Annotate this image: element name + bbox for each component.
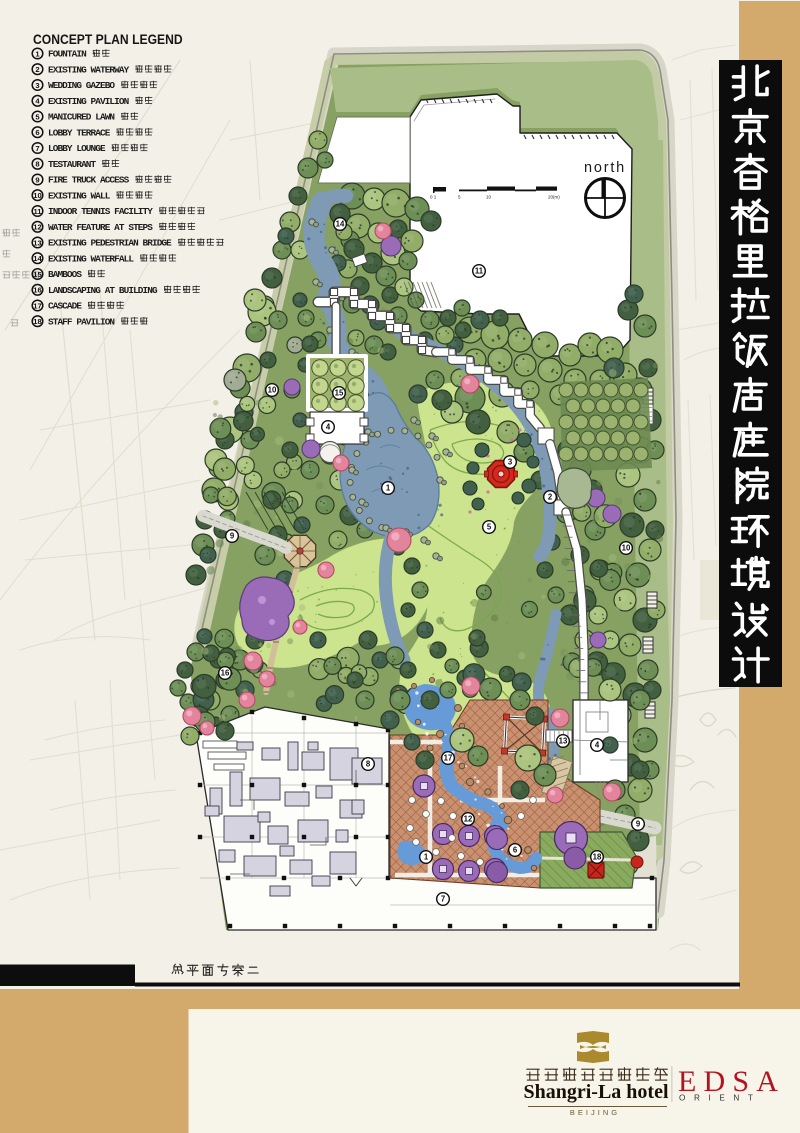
svg-text:FOUNTAIN: FOUNTAIN <box>48 49 87 60</box>
svg-text:9: 9 <box>636 820 641 829</box>
svg-text:5: 5 <box>487 523 492 532</box>
svg-text:20(m): 20(m) <box>548 195 560 200</box>
svg-text:WEDDING GAZEBO: WEDDING GAZEBO <box>48 80 115 91</box>
svg-text:1: 1 <box>386 484 391 493</box>
svg-text:17: 17 <box>33 301 41 310</box>
svg-text:EXISTING WALL: EXISTING WALL <box>48 190 111 201</box>
svg-text:2: 2 <box>548 493 553 502</box>
svg-text:LANDSCAPING AT BUILDING: LANDSCAPING AT BUILDING <box>48 285 158 296</box>
svg-text:BAMBOOS: BAMBOOS <box>48 269 82 280</box>
svg-text:10: 10 <box>268 386 277 395</box>
svg-text:EXISTING PEDESTRIAN BRIDGE: EXISTING PEDESTRIAN BRIDGE <box>48 238 172 249</box>
svg-text:ORIENT: ORIENT <box>679 1094 762 1103</box>
svg-text:3: 3 <box>35 81 39 90</box>
svg-text:17: 17 <box>444 754 453 763</box>
svg-text:15: 15 <box>33 270 42 279</box>
svg-text:north: north <box>584 160 626 176</box>
svg-text:EXISTING WATERFALL: EXISTING WATERFALL <box>48 253 134 264</box>
svg-text:0 1: 0 1 <box>430 195 437 200</box>
svg-text:EXISTING PAVILION: EXISTING PAVILION <box>48 96 130 107</box>
svg-text:4: 4 <box>595 741 600 750</box>
svg-text:CONCEPT PLAN LEGEND: CONCEPT PLAN LEGEND <box>33 31 183 47</box>
svg-text:8: 8 <box>35 160 39 169</box>
svg-text:3: 3 <box>508 458 513 467</box>
svg-text:LOBBY TERRACE: LOBBY TERRACE <box>48 127 111 138</box>
svg-text:BEIJING: BEIJING <box>570 1108 620 1117</box>
svg-text:9: 9 <box>230 532 235 541</box>
svg-text:13: 13 <box>33 238 41 247</box>
svg-text:4: 4 <box>326 423 331 432</box>
svg-text:TESTAURANT: TESTAURANT <box>48 159 97 170</box>
svg-text:10: 10 <box>486 195 492 200</box>
svg-text:11: 11 <box>475 267 484 276</box>
svg-text:13: 13 <box>559 737 568 746</box>
svg-text:6: 6 <box>513 846 518 855</box>
svg-text:15: 15 <box>335 389 344 398</box>
svg-text:MANICURED LAWN: MANICURED LAWN <box>48 112 115 123</box>
svg-text:14: 14 <box>33 254 42 263</box>
svg-text:10: 10 <box>622 544 631 553</box>
svg-text:1: 1 <box>424 853 429 862</box>
svg-text:16: 16 <box>221 669 230 678</box>
svg-text:12: 12 <box>464 815 473 824</box>
svg-text:12: 12 <box>33 223 41 232</box>
svg-text:7: 7 <box>35 144 39 153</box>
svg-text:10: 10 <box>33 191 41 200</box>
svg-text:FIRE TRUCK ACCESS: FIRE TRUCK ACCESS <box>48 175 130 186</box>
svg-text:16: 16 <box>33 286 41 295</box>
svg-text:Shangri-La hotel: Shangri-La hotel <box>523 1081 668 1103</box>
svg-text:8: 8 <box>366 760 371 769</box>
svg-text:2: 2 <box>35 65 39 74</box>
svg-text:INDOOR TENNIS FACILITY: INDOOR TENNIS FACILITY <box>48 206 153 217</box>
svg-text:WATER FEATURE AT STEPS: WATER FEATURE AT STEPS <box>48 222 153 233</box>
svg-text:EXISTING WATERWAY: EXISTING WATERWAY <box>48 64 130 75</box>
svg-text:STAFF PAVILION: STAFF PAVILION <box>48 316 115 327</box>
svg-text:6: 6 <box>35 128 39 137</box>
svg-text:18: 18 <box>33 317 41 326</box>
svg-text:CASCADE: CASCADE <box>48 301 82 312</box>
svg-text:14: 14 <box>336 220 345 229</box>
svg-text:LOBBY LOUNGE: LOBBY LOUNGE <box>48 143 106 154</box>
svg-text:18: 18 <box>593 853 602 862</box>
svg-text:9: 9 <box>35 175 39 184</box>
svg-text:7: 7 <box>441 895 445 904</box>
svg-text:11: 11 <box>33 207 42 216</box>
